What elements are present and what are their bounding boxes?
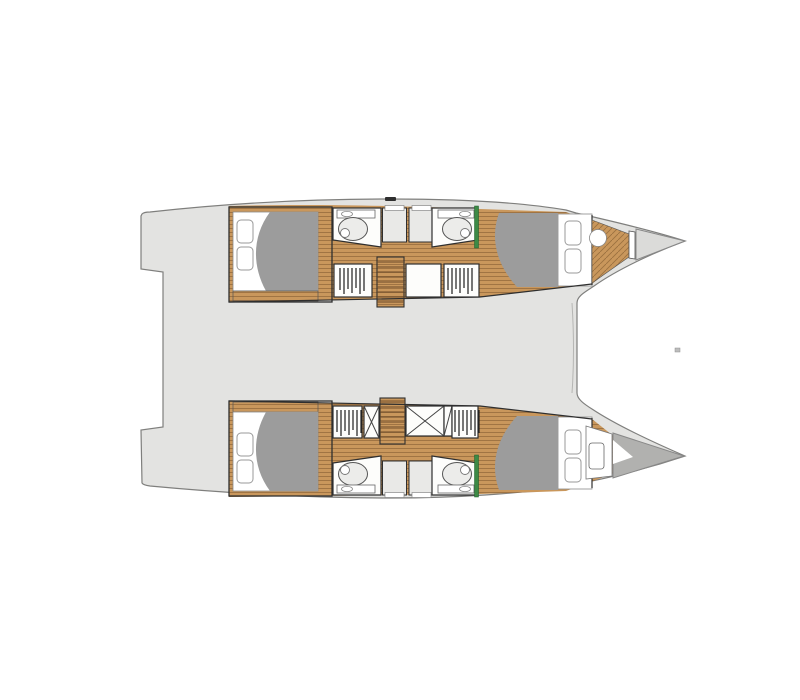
shower-stall <box>409 208 433 242</box>
hanging-locker <box>452 406 478 438</box>
shower-drain-icon <box>461 466 470 475</box>
foot-bench <box>233 402 318 412</box>
upper-hull <box>229 205 685 307</box>
pillow <box>237 220 253 243</box>
pillow <box>565 249 581 273</box>
deck-hatch <box>589 443 604 469</box>
upper-aft-cabin <box>229 207 332 302</box>
washbasin-icon <box>590 230 607 247</box>
pillow <box>237 460 253 483</box>
washbasin-icon <box>460 486 471 491</box>
lower-forward-cabin <box>495 416 592 490</box>
stall-window <box>385 493 404 498</box>
shower-drain-icon <box>461 229 470 238</box>
lower-hull <box>229 398 684 498</box>
storage-locker <box>406 264 441 297</box>
pillow <box>565 221 581 245</box>
lower-aft-bathroom <box>333 456 381 495</box>
shower-stall <box>383 208 407 242</box>
duvet <box>256 412 318 491</box>
shower-stall <box>409 461 433 495</box>
stall-window <box>412 206 431 211</box>
upper-forepeak <box>590 220 686 283</box>
pillow <box>237 433 253 456</box>
duvet <box>256 212 318 291</box>
washbasin-icon <box>342 486 353 491</box>
hanging-clothes-icon <box>340 268 364 294</box>
shower-drain-icon <box>341 229 350 238</box>
lower-aft-cabin <box>229 401 332 496</box>
pillow <box>565 430 581 454</box>
pillow <box>565 458 581 482</box>
door-accent <box>475 206 479 248</box>
hanging-clothes-icon <box>337 410 361 436</box>
upper-forward-cabin <box>495 213 592 287</box>
print-speck <box>675 348 680 352</box>
upper-aft-bathroom <box>333 208 381 247</box>
hanging-clothes-icon <box>455 410 479 436</box>
mast-step-mark <box>385 197 396 201</box>
hanging-locker <box>444 264 479 297</box>
stall-window <box>412 493 431 498</box>
catamaran-floor-plan <box>0 0 800 700</box>
washbasin-icon <box>342 211 353 216</box>
hanging-clothes-icon <box>448 268 472 294</box>
pillow <box>237 247 253 270</box>
shower-drain-icon <box>341 466 350 475</box>
floor-plan-page <box>0 0 800 700</box>
door-accent <box>475 455 479 497</box>
foot-bench <box>233 291 318 301</box>
shower-stall <box>383 461 407 495</box>
washbasin-icon <box>460 211 471 216</box>
bow-bulkhead <box>629 231 635 259</box>
stall-window <box>385 206 404 211</box>
